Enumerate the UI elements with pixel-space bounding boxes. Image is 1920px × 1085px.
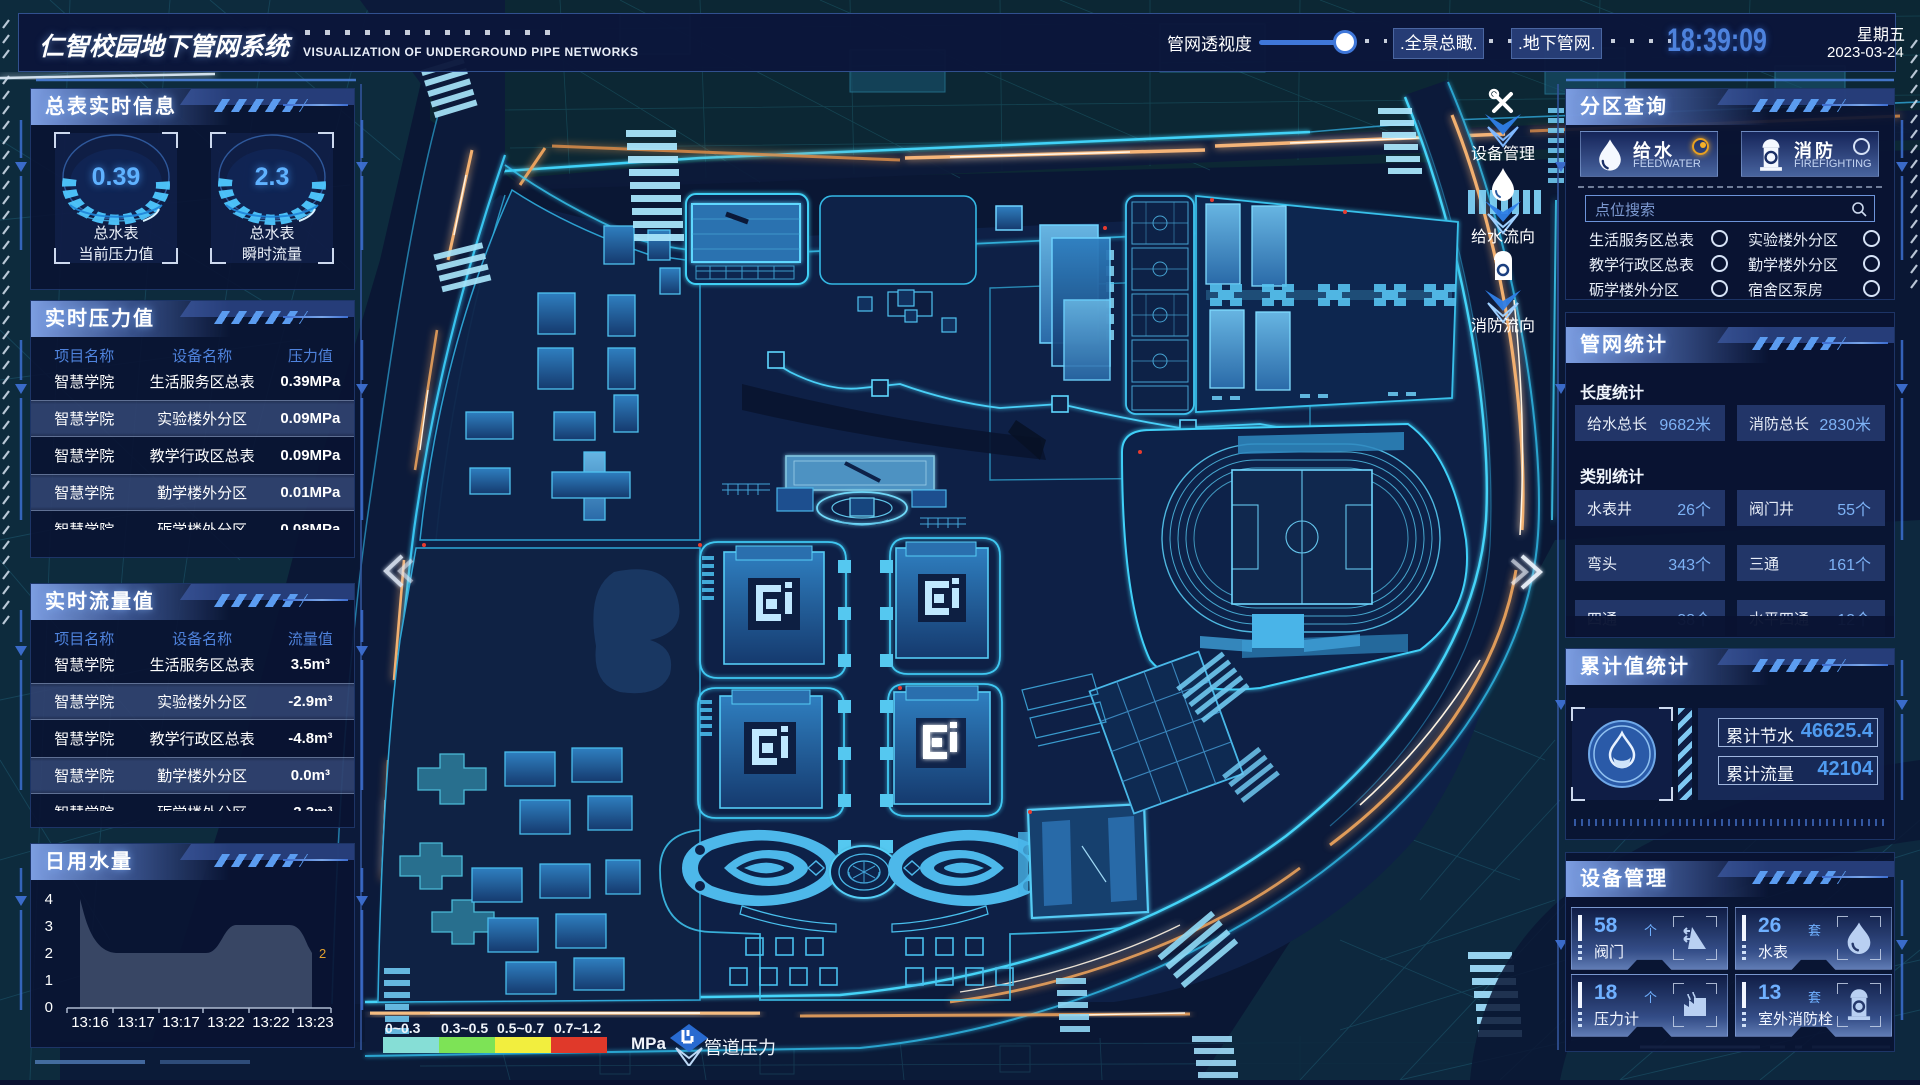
svg-text:13:23: 13:23: [296, 1014, 334, 1031]
svg-text:13:16: 13:16: [71, 1014, 109, 1031]
svg-text:2: 2: [319, 946, 326, 961]
svg-text:13:17: 13:17: [117, 1014, 155, 1031]
svg-text:13:17: 13:17: [162, 1014, 200, 1031]
svg-text:2: 2: [45, 945, 53, 962]
svg-text:4: 4: [45, 891, 53, 908]
svg-text:3: 3: [45, 918, 53, 935]
svg-text:0: 0: [45, 999, 53, 1016]
svg-text:13:22: 13:22: [252, 1014, 290, 1031]
svg-text:1: 1: [45, 972, 53, 989]
svg-text:消防流向: 消防流向: [1471, 317, 1535, 335]
svg-text:13:22: 13:22: [207, 1014, 245, 1031]
svg-text:给水流向: 给水流向: [1471, 228, 1535, 246]
svg-text:设备管理: 设备管理: [1471, 145, 1535, 163]
